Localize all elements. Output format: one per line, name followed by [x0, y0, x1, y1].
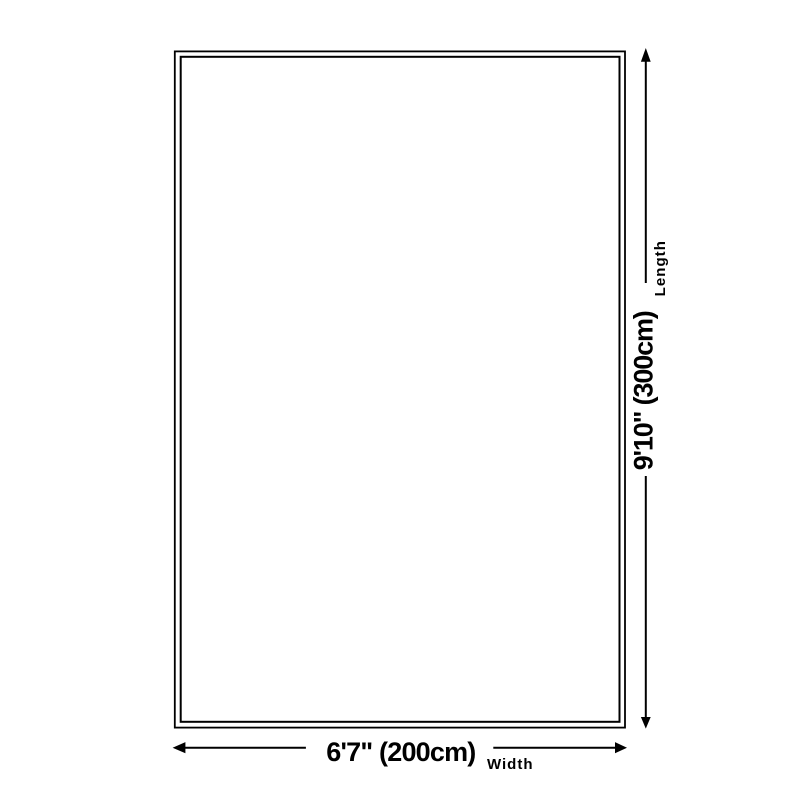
svg-text:Length: Length — [652, 241, 669, 296]
svg-text:Width: Width — [487, 756, 533, 773]
svg-text:9'10" (300cm): 9'10" (300cm) — [629, 310, 659, 470]
svg-text:6'7" (200cm): 6'7" (200cm) — [326, 737, 476, 767]
